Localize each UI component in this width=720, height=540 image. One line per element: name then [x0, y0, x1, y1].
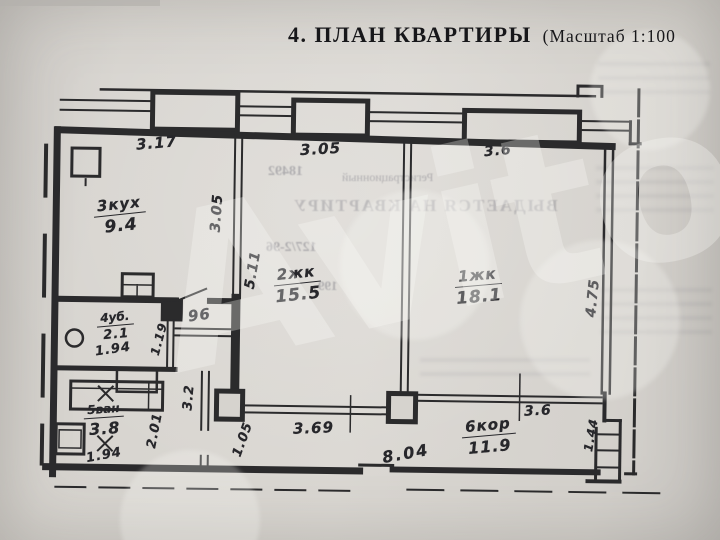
dim-hall-passage: 96 [187, 304, 212, 325]
window-pier [152, 92, 238, 130]
dim-corridor-right: 3.6 [524, 402, 553, 419]
dim-corridor-span: 3.69 [293, 418, 335, 437]
exterior-walls [41, 130, 670, 496]
toilet-icon [66, 329, 83, 346]
dim-kitchen-right-vert: 3.05 [208, 191, 227, 234]
page-title: 4. ПЛАН КВАРТИРЫ (Масштаб 1:100 [288, 22, 676, 48]
scanned-floor-plan-page: 4. ПЛАН КВАРТИРЫ (Масштаб 1:100 18492 Ре… [0, 0, 720, 540]
right-boundary-line [626, 90, 641, 474]
window-pier [464, 110, 579, 143]
plan-scale: (Масштаб 1:100 [543, 26, 676, 47]
door-leaf [178, 288, 206, 300]
room-label-toilet: 4уб. 2.1 [96, 308, 136, 343]
plan-title: 4. ПЛАН КВАРТИРЫ [288, 22, 532, 48]
kitchen-cabinet-icon [72, 148, 100, 176]
wall-pillar [388, 393, 415, 421]
room-label-kitchen: 3кух 9.4 [92, 192, 148, 238]
room-area: 3.8 [84, 417, 126, 440]
dim-room2-top: 3.05 [300, 139, 342, 159]
wall-pillar [216, 391, 242, 419]
sink-icon [56, 424, 84, 454]
dim-hall-height-vert: 3.2 [180, 380, 198, 415]
room-label-bath: 5ван 3.8 [83, 401, 126, 440]
dim-room1-top: 3.6 [483, 142, 512, 160]
room-label-room1: 1жк 18.1 [453, 264, 503, 309]
room-label-corridor: 6кор 11.9 [460, 414, 517, 459]
room-label-room2: 2жк 15.5 [272, 262, 323, 308]
wall-junction [162, 300, 182, 320]
dim-kitchen-top: 3.17 [135, 132, 177, 154]
room-area: 18.1 [455, 284, 503, 309]
window-pier [293, 100, 367, 136]
